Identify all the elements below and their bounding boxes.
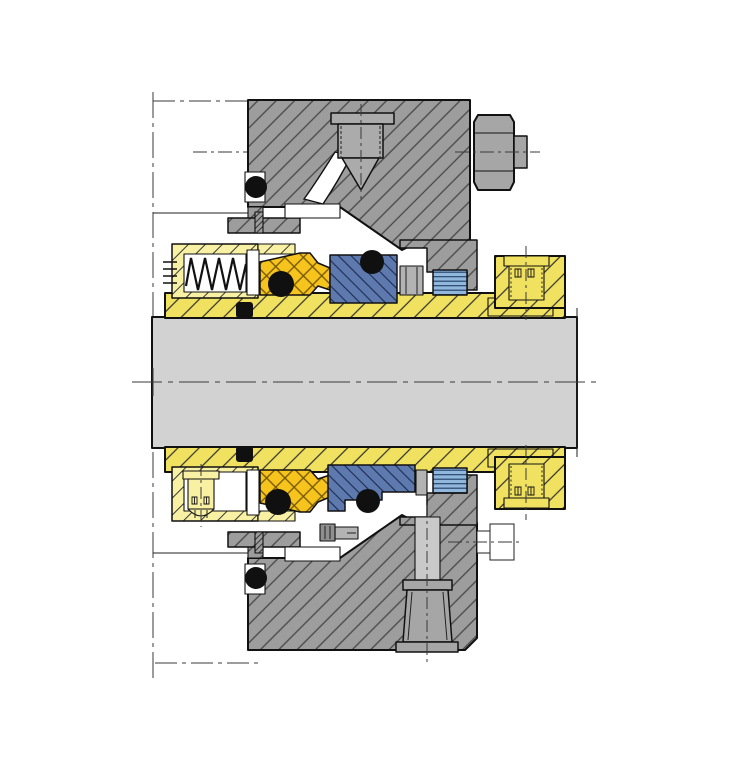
seat-gasket-upper — [433, 270, 467, 295]
gland-oring-upper — [245, 176, 267, 198]
sleeve-oring-lower — [236, 446, 253, 462]
seat-oring-lower — [356, 489, 380, 513]
seat-clamp-spacer-upper — [400, 266, 423, 295]
gasket-slot-lower — [285, 547, 340, 561]
technical-drawing-canvas — [0, 0, 731, 768]
seat-gasket-lower — [433, 468, 467, 493]
clamp-screw-head — [320, 524, 335, 541]
shaft-group — [132, 308, 600, 457]
gland-stud — [415, 517, 440, 582]
seat-oring-upper — [360, 250, 384, 274]
gland-lip-lower — [228, 532, 300, 547]
retainer-plate-upper — [258, 244, 295, 254]
dynamic-oring-lower — [265, 489, 291, 515]
seat-clamp-screw — [320, 524, 358, 541]
gland-oring-lower — [245, 567, 267, 589]
spring-follower-lower — [247, 470, 259, 515]
dynamic-oring-upper — [268, 271, 294, 297]
upper-seal-stack — [163, 244, 565, 320]
plug-flange — [331, 113, 394, 124]
seat-clamp-spacer-lower — [416, 470, 427, 495]
sleeve-oring-upper — [236, 302, 253, 318]
anti-rotation-pin-upper — [255, 212, 263, 233]
spring-follower-upper — [247, 250, 259, 295]
gasket-slot-upper — [285, 204, 340, 218]
gland-lip-upper — [228, 218, 300, 233]
mechanical-seal-cross-section — [0, 0, 731, 768]
lower-seal-stack — [165, 445, 565, 527]
anti-rotation-pin-lower — [255, 532, 263, 553]
